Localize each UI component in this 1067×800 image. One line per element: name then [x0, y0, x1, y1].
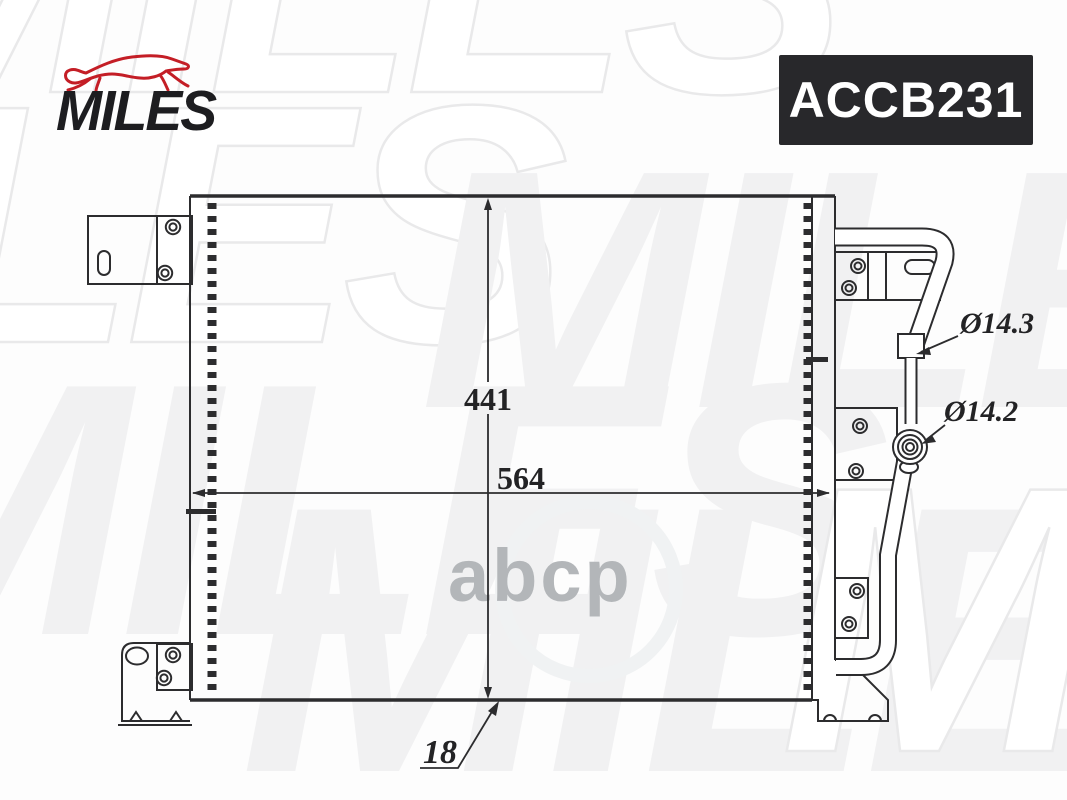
dimension-height-label: 441 [464, 381, 512, 417]
part-number-badge: ACCB231 [779, 55, 1033, 145]
dimension-width-label: 564 [497, 460, 545, 496]
solder-mark-left [186, 509, 216, 514]
brand-logo-text: MILES [56, 78, 215, 144]
mounting-bracket-bottom-left [118, 643, 192, 725]
product-image-page: MILES MILES MILES MILES MILES MILES abcp [0, 0, 1067, 800]
mounting-bracket-top-left [88, 216, 192, 284]
diameter-bottom-leader [921, 425, 945, 444]
solder-mark-right [806, 357, 828, 362]
brand-logo: MILES [56, 42, 316, 142]
mounting-bracket-middle-right [835, 408, 897, 480]
pipe-port-top [898, 334, 924, 358]
refrigerant-pipe-lower [836, 462, 905, 667]
diameter-top-label: Ø14.3 [959, 307, 1034, 340]
part-number-text: ACCB231 [789, 71, 1024, 129]
dimension-depth-label: 18 [423, 734, 457, 771]
mounting-bracket-bottom-right [835, 578, 868, 638]
diameter-bottom-label: Ø14.2 [943, 395, 1018, 428]
dimension-height-line [484, 198, 492, 699]
